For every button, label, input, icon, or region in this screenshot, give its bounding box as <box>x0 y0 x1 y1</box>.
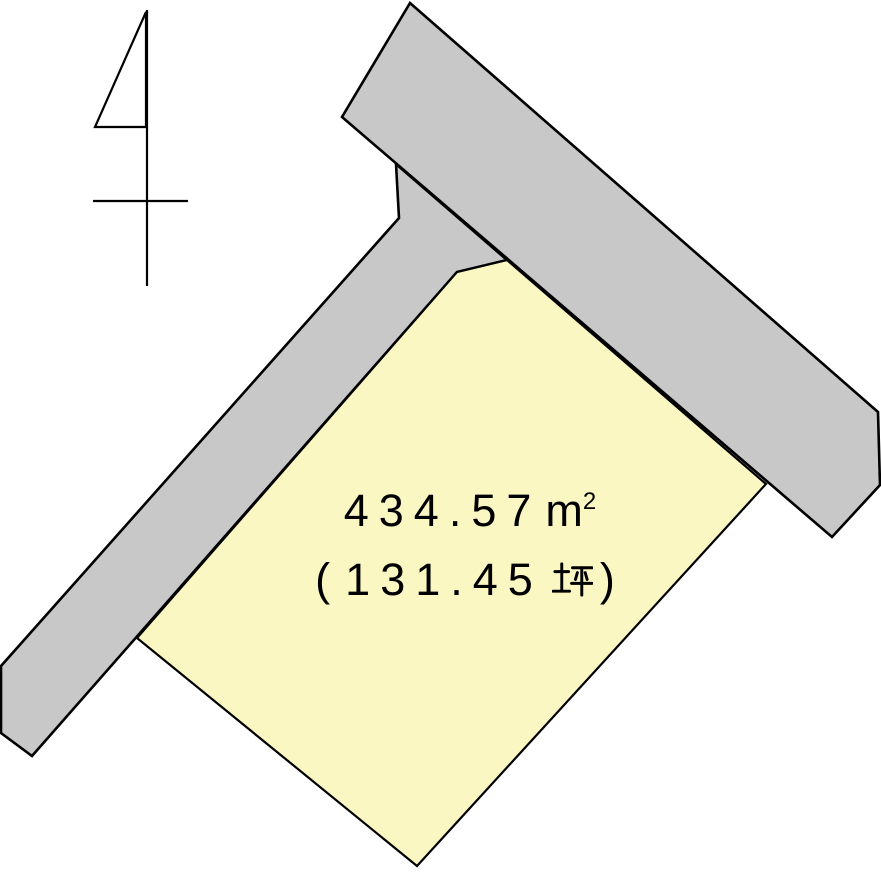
parcel-area-unit: m2 <box>545 485 596 536</box>
north-arrow-icon <box>93 10 188 286</box>
land-plot-diagram: 434.57m2 (131.45 ) <box>0 0 881 877</box>
parcel-tsubo-value: 131.45 <box>345 554 543 605</box>
tsubo-close-paren: ) <box>600 554 625 605</box>
parcel-area-label: 434.57m2 <box>280 487 660 543</box>
tsubo-open-paren: ( <box>315 554 340 605</box>
parcel-tsubo-label: (131.45 ) <box>280 556 660 604</box>
tsubo-kanji-glyph <box>552 557 593 598</box>
diagram-canvas <box>0 0 881 877</box>
parcel-area-value: 434.57 <box>344 485 542 536</box>
north-arrow-head <box>95 12 146 127</box>
unit-square-exponent: 2 <box>583 488 596 515</box>
unit-m: m <box>545 485 583 536</box>
